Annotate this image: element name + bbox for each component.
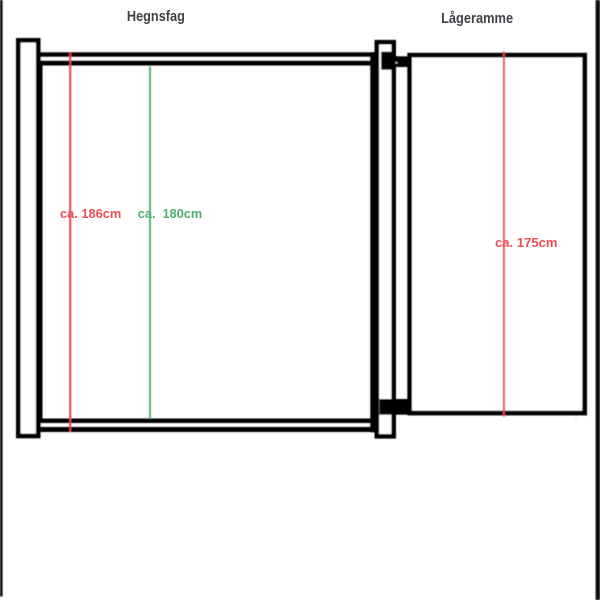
svg-text:ca. 186cm: ca. 186cm — [60, 206, 121, 221]
svg-text:Hegnsfag: Hegnsfag — [127, 9, 185, 25]
svg-text:ca. 175cm: ca. 175cm — [495, 235, 558, 250]
svg-text:Lågeramme: Lågeramme — [441, 11, 513, 27]
svg-text:ca. 180cm: ca. 180cm — [138, 206, 202, 221]
